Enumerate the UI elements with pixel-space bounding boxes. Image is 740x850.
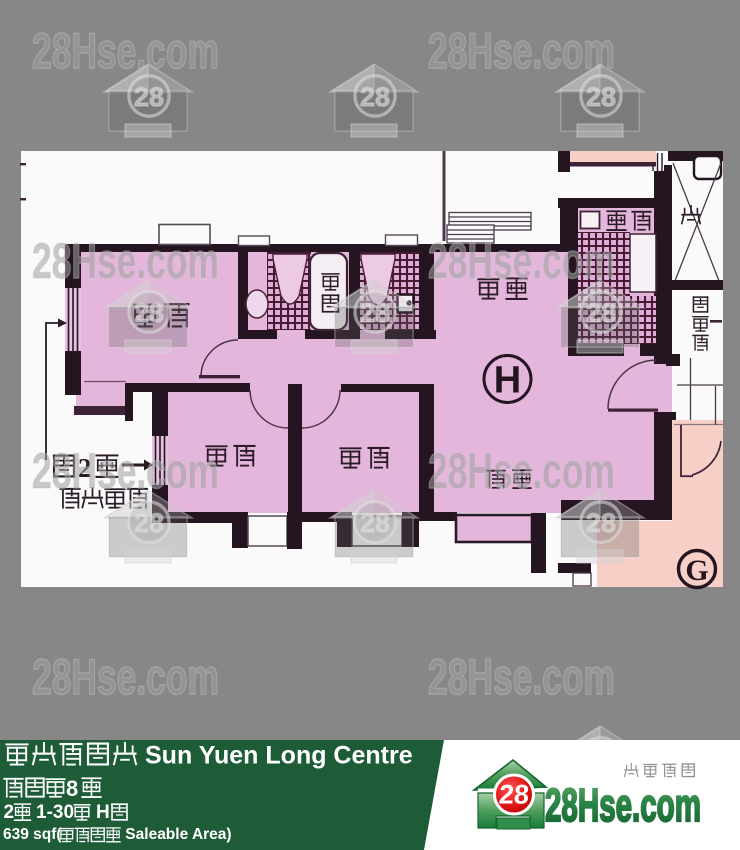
svg-text:28Hse.com: 28Hse.com xyxy=(32,23,219,79)
svg-text:H: H xyxy=(494,360,521,402)
svg-text:28Hse.com: 28Hse.com xyxy=(32,233,219,289)
svg-text:G: G xyxy=(685,554,708,587)
svg-text:639 sqf(: 639 sqf( xyxy=(3,826,62,843)
svg-text:28Hse.com: 28Hse.com xyxy=(32,649,219,705)
svg-text:28Hse.com: 28Hse.com xyxy=(428,443,615,499)
svg-text:28Hse.com: 28Hse.com xyxy=(32,443,219,499)
svg-text:Saleable Area): Saleable Area) xyxy=(121,826,232,843)
svg-text:8: 8 xyxy=(66,776,78,801)
svg-text:2: 2 xyxy=(4,802,15,823)
svg-text:28Hse.com: 28Hse.com xyxy=(428,233,615,289)
svg-text:28Hse.com: 28Hse.com xyxy=(545,779,701,831)
svg-text:1-30: 1-30 xyxy=(36,802,74,823)
svg-text:28Hse.com: 28Hse.com xyxy=(428,649,615,705)
svg-text:H: H xyxy=(96,802,110,823)
svg-text:Sun Yuen Long Centre: Sun Yuen Long Centre xyxy=(145,742,413,770)
svg-text:28Hse.com: 28Hse.com xyxy=(428,23,615,79)
svg-text:28: 28 xyxy=(498,780,530,810)
